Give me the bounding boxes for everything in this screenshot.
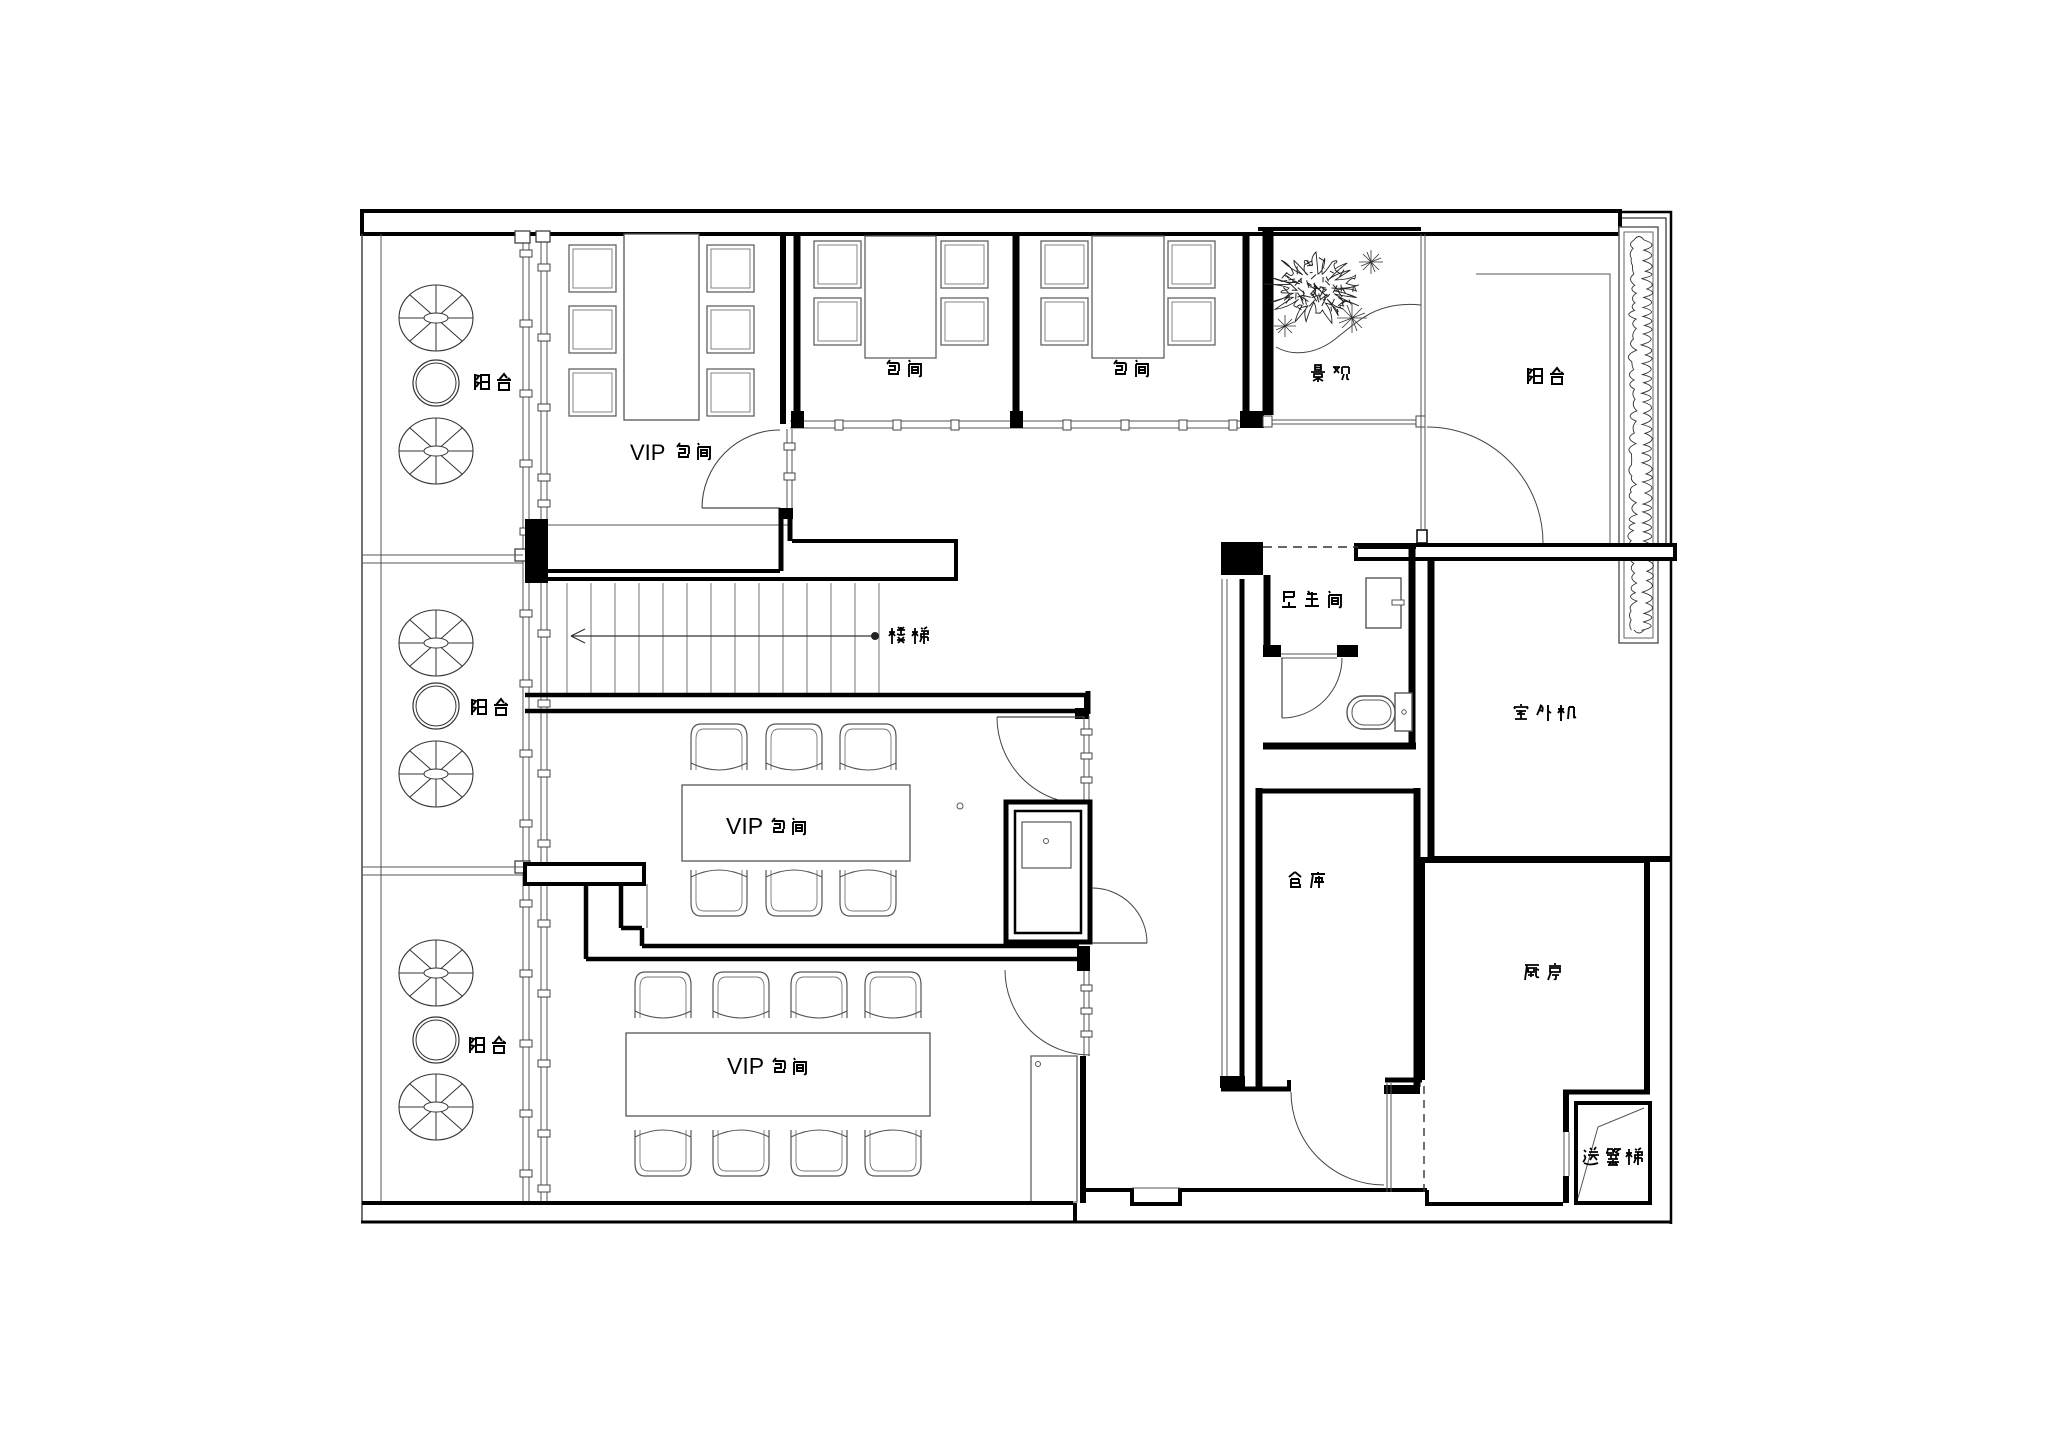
svg-text:VIP: VIP — [726, 813, 763, 839]
svg-text:VIP: VIP — [727, 1053, 764, 1079]
svg-text:VIP: VIP — [630, 440, 665, 465]
